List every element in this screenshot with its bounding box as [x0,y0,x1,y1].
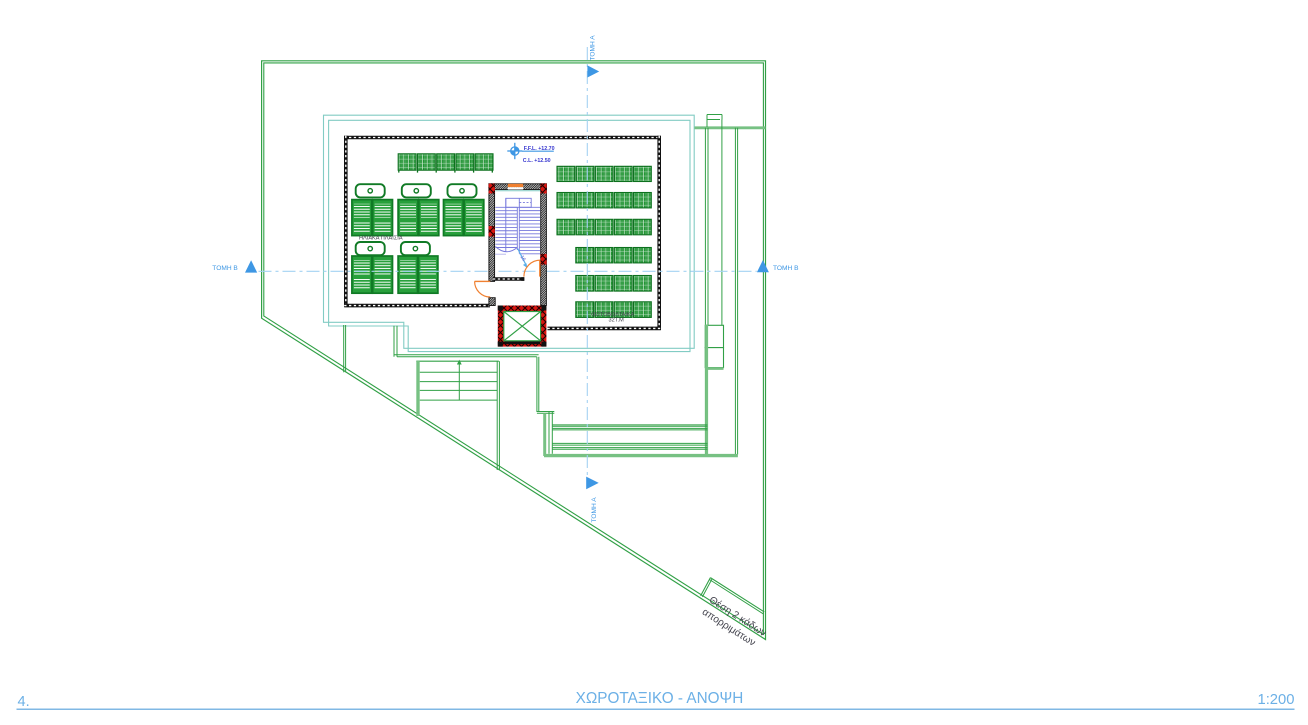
svg-text:32Τ.Μ: 32Τ.Μ [609,318,625,324]
svg-text:ΤΟΜΗ Β: ΤΟΜΗ Β [212,265,238,272]
svg-text:1:200: 1:200 [1257,692,1294,708]
svg-text:ΗΛΙΑΚΑ ΠΛΑΙΣΙΑ: ΗΛΙΑΚΑ ΠΛΑΙΣΙΑ [359,236,403,242]
svg-text:ΤΟΜΗ Β: ΤΟΜΗ Β [773,265,799,272]
svg-text:ΧΩΡΟΤΑΞΙΚΟ - ΑΝΟΨΗ: ΧΩΡΟΤΑΞΙΚΟ - ΑΝΟΨΗ [576,690,744,707]
svg-text:4.: 4. [18,694,30,710]
svg-text:ΤΟΜΗ Α: ΤΟΜΗ Α [589,35,596,61]
svg-text:C.L. +12.50: C.L. +12.50 [523,158,551,164]
svg-text:ΤΟΜΗ Α: ΤΟΜΗ Α [591,497,598,523]
